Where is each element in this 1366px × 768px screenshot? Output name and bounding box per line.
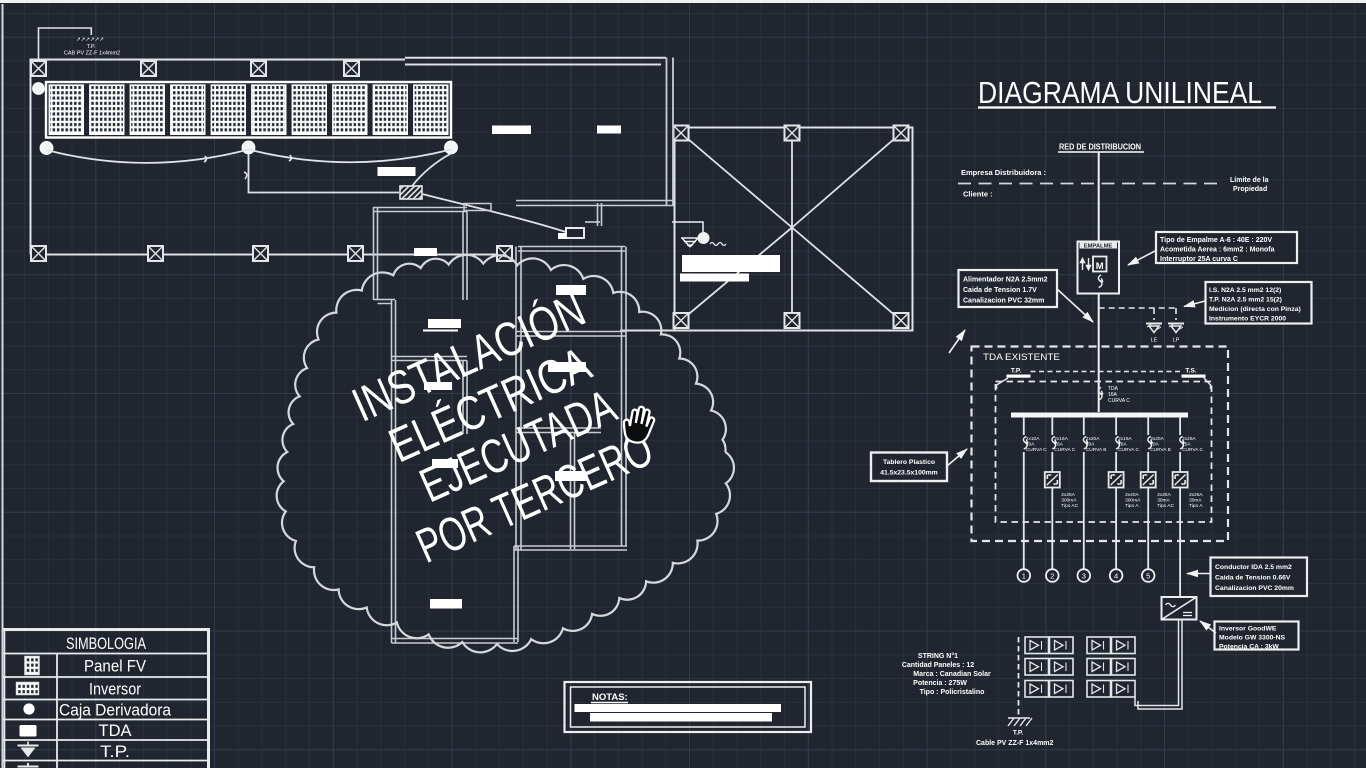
- svg-text:Caja Derivadora: Caja Derivadora: [59, 702, 172, 720]
- svg-text:TDA: TDA: [99, 722, 132, 740]
- svg-text:Modelo GW 3300-NS: Modelo GW 3300-NS: [1219, 635, 1286, 642]
- svg-text:30mA: 30mA: [1157, 498, 1170, 504]
- svg-text:2x25A: 2x25A: [1189, 492, 1203, 498]
- svg-text:T.P.: T.P.: [100, 743, 130, 761]
- svg-text:Canalizacion PVC 20mm: Canalizacion PVC 20mm: [1215, 585, 1294, 592]
- svg-text:20A: 20A: [1150, 442, 1159, 448]
- svg-text:Empresa Distribuidora :: Empresa Distribuidora :: [961, 168, 1046, 177]
- svg-text:Interruptor 25A curva C: Interruptor 25A curva C: [1160, 256, 1238, 263]
- svg-text:16A: 16A: [1054, 442, 1063, 448]
- svg-text:CURVA C: CURVA C: [1054, 447, 1075, 453]
- svg-text:2x10A: 2x10A: [1026, 436, 1040, 442]
- svg-text:CURVA B: CURVA B: [1150, 447, 1171, 453]
- svg-text:Alimentador N2A 2.5mm2: Alimentador N2A 2.5mm2: [963, 277, 1048, 284]
- svg-text:DIAGRAMA UNILINEAL: DIAGRAMA UNILINEAL: [978, 75, 1262, 110]
- svg-text:Cliente :: Cliente :: [963, 190, 993, 199]
- svg-text:SIMBOLOGIA: SIMBOLOGIA: [66, 634, 146, 653]
- svg-text:CAB PV ZZ-F 1x4mm2: CAB PV ZZ-F 1x4mm2: [64, 51, 120, 57]
- svg-text:Medicion (directa con Pinza): Medicion (directa con Pinza): [1209, 306, 1301, 313]
- svg-text:4: 4: [1114, 572, 1118, 581]
- svg-text:TDA EXISTENTE: TDA EXISTENTE: [983, 352, 1060, 362]
- svg-text:300mA: 300mA: [1125, 498, 1141, 504]
- svg-text:↗↗↗↗↗↗: ↗↗↗↗↗↗: [76, 37, 104, 43]
- svg-text:2x20A: 2x20A: [1150, 436, 1164, 442]
- svg-text:CURVA C: CURVA C: [1118, 447, 1139, 453]
- svg-text:2x25A: 2x25A: [1157, 492, 1171, 498]
- svg-text:2x25A: 2x25A: [1182, 436, 1196, 442]
- svg-text:2x25A: 2x25A: [1061, 492, 1075, 498]
- svg-text:Tipo AC: Tipo AC: [1061, 503, 1078, 509]
- svg-text:Tipo AC: Tipo AC: [1157, 503, 1174, 509]
- svg-text:300mA: 300mA: [1061, 498, 1077, 504]
- svg-text:1: 1: [1022, 572, 1026, 581]
- svg-text:2: 2: [1050, 572, 1054, 581]
- svg-text:2x40A: 2x40A: [1125, 492, 1139, 498]
- svg-text:3: 3: [1082, 572, 1086, 581]
- svg-text:Cable PV ZZ-F 1x4mm2: Cable PV ZZ-F 1x4mm2: [976, 740, 1054, 747]
- svg-text:T.S.: T.S.: [1185, 368, 1196, 375]
- svg-text:5: 5: [1146, 572, 1150, 581]
- svg-text:Propiedad: Propiedad: [1233, 186, 1267, 193]
- svg-text:T.P. N2A 2.5 mm2 15(2): T.P. N2A 2.5 mm2 15(2): [1209, 297, 1282, 304]
- svg-text:Acometida Aerea : 6mm2 : Monof: Acometida Aerea : 6mm2 : Monofa: [1160, 246, 1275, 253]
- svg-text:2x16A: 2x16A: [1118, 436, 1132, 442]
- svg-text:RED DE DISTRIBUCION: RED DE DISTRIBUCION: [1059, 143, 1141, 152]
- svg-text:Tipo de Empalme A-6 : 40E : 22: Tipo de Empalme A-6 : 40E : 220V: [1160, 237, 1272, 244]
- svg-text:Instrumento EYCR 2000: Instrumento EYCR 2000: [1209, 316, 1286, 323]
- svg-text:T.P.: T.P.: [87, 44, 96, 50]
- svg-text:CURVA C: CURVA C: [1026, 447, 1047, 453]
- svg-text:M: M: [1096, 261, 1104, 272]
- svg-text:STRING N°1: STRING N°1: [918, 652, 958, 660]
- svg-text:25A: 25A: [1182, 442, 1191, 448]
- svg-text:41.5x23.5x100mm: 41.5x23.5x100mm: [880, 470, 937, 477]
- svg-text:Tipo : Policristalino: Tipo : Policristalino: [920, 689, 985, 696]
- svg-text:Cantidad Paneles : 12: Cantidad Paneles : 12: [902, 662, 974, 669]
- svg-text:Caida de Tension 1.7V: Caida de Tension 1.7V: [963, 287, 1037, 294]
- svg-text:NOTAS:: NOTAS:: [592, 692, 628, 703]
- svg-text:Tipo A: Tipo A: [1125, 503, 1139, 509]
- svg-text:20A: 20A: [1086, 442, 1095, 448]
- svg-text:Potencia : 275W: Potencia : 275W: [913, 680, 967, 687]
- svg-text:CURVA C: CURVA C: [1108, 398, 1130, 404]
- svg-text:2x20A: 2x20A: [1086, 436, 1100, 442]
- svg-text:CURVA B: CURVA B: [1086, 447, 1107, 453]
- svg-text:Marca : Canadian Solar: Marca : Canadian Solar: [913, 671, 991, 678]
- svg-text:Caida de Tension 0.66V: Caida de Tension 0.66V: [1215, 575, 1291, 582]
- svg-text:30mA: 30mA: [1189, 498, 1202, 504]
- svg-text:CURVA C: CURVA C: [1182, 447, 1203, 453]
- svg-text:LP: LP: [1173, 338, 1180, 344]
- svg-text:Inversor: Inversor: [89, 681, 141, 699]
- svg-text:LE: LE: [1151, 338, 1158, 344]
- svg-text:16A: 16A: [1118, 442, 1127, 448]
- svg-text:10A: 10A: [1026, 442, 1035, 448]
- svg-text:I.S. N2A 2.5 mm2 12(2): I.S. N2A 2.5 mm2 12(2): [1209, 287, 1281, 294]
- svg-text:Tipo A: Tipo A: [1189, 503, 1203, 509]
- svg-text:Inversor GoodWE: Inversor GoodWE: [1219, 626, 1277, 633]
- svg-text:Canalizacion PVC 32mm: Canalizacion PVC 32mm: [963, 298, 1044, 305]
- svg-text:EMPALME: EMPALME: [1084, 243, 1113, 249]
- svg-text:T.P.: T.P.: [1011, 368, 1022, 375]
- svg-text:Conductor IDA 2.5 mm2: Conductor IDA 2.5 mm2: [1215, 564, 1292, 571]
- svg-text:Límite de la: Límite de la: [1230, 177, 1269, 184]
- svg-text:Potencia CA : 3kW: Potencia CA : 3kW: [1219, 644, 1279, 651]
- svg-text:T.P.: T.P.: [1013, 730, 1024, 737]
- svg-text:Tablero Plastico: Tablero Plastico: [883, 459, 935, 466]
- svg-text:Panel FV: Panel FV: [84, 658, 146, 676]
- svg-text:2x16A: 2x16A: [1054, 436, 1068, 442]
